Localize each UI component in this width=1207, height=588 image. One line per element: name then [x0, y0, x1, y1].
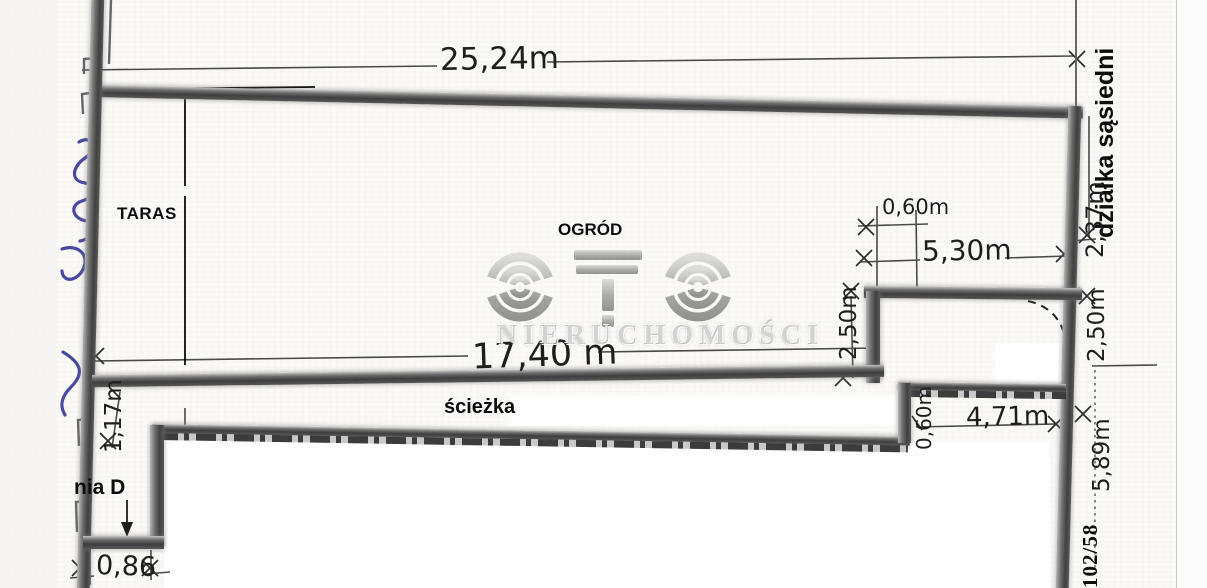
dim-left-lower: 1,17m — [103, 379, 126, 453]
bottom-left-short-wall — [83, 536, 164, 549]
path-label: ścieżka — [444, 397, 515, 417]
scanned-site-plan: TARAS OGRÓD ścieżka nia D działka sąsied… — [0, 0, 1207, 588]
dim-step-depth-left: 2,50m — [838, 286, 861, 360]
dim-right-mid: 2,50m — [1086, 288, 1109, 362]
terrace-label: TARAS — [117, 205, 177, 222]
dim-step-wall: 5,30m — [922, 236, 1012, 266]
dim-right-upper: 2,37m — [1083, 181, 1107, 258]
lower-step-side-wall — [898, 383, 911, 443]
garden-label: OGRÓD — [558, 221, 622, 238]
watermark-subtitle: NIERUCHOMOŚCI — [497, 320, 824, 352]
terrace-outline — [118, 87, 315, 365]
building-label-fragment: nia D — [74, 477, 125, 498]
dim-step-offset-top: 0,60m — [882, 197, 949, 218]
down-arrow — [121, 500, 133, 537]
dim-lower-step-offset: 0,60m — [914, 386, 934, 450]
building-left-wall — [150, 425, 164, 547]
right-scan-margin — [1176, 0, 1207, 588]
dim-bottom-left: 0,86 — [96, 552, 157, 581]
dim-lower-step-width: 4,71m — [966, 403, 1050, 430]
garden-step-wall — [864, 286, 1082, 300]
oto-logo — [478, 243, 740, 329]
plot-number-label: 102/58 — [1080, 524, 1101, 588]
door-swing-arc — [1028, 301, 1066, 343]
dim-right-lower: 5,89m — [1091, 418, 1114, 492]
dim-top-width: 25,24m — [440, 43, 559, 76]
